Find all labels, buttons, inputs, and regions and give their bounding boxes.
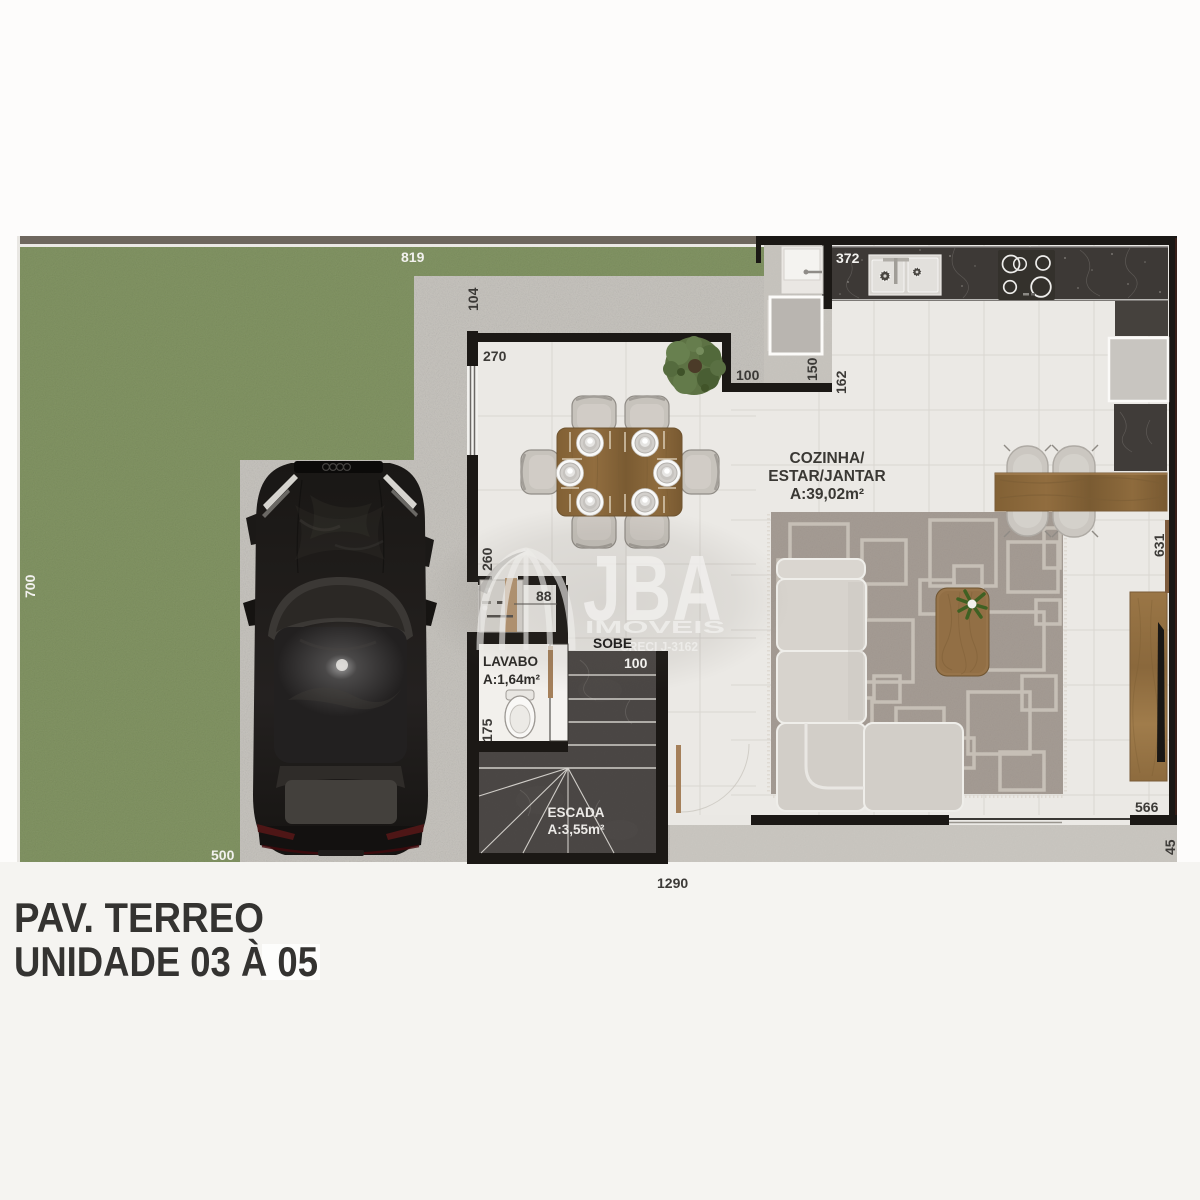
svg-text:ESTAR/JANTAR: ESTAR/JANTAR [768, 468, 885, 485]
svg-text:1290: 1290 [657, 875, 688, 891]
svg-text:700: 700 [22, 574, 38, 598]
svg-text:A:3,55m²: A:3,55m² [547, 822, 605, 837]
svg-text:566: 566 [1135, 799, 1159, 815]
svg-text:175: 175 [479, 718, 495, 742]
svg-text:150: 150 [804, 357, 820, 381]
svg-text:SOBE: SOBE [593, 636, 632, 651]
svg-text:100: 100 [624, 655, 648, 671]
svg-text:270: 270 [483, 348, 507, 364]
svg-text:104: 104 [465, 287, 481, 311]
svg-text:500: 500 [211, 847, 235, 863]
svg-text:162: 162 [833, 370, 849, 394]
svg-text:IMÓVEIS: IMÓVEIS [585, 616, 725, 637]
svg-text:631: 631 [1151, 533, 1167, 557]
svg-text:UNIDADE 03 À 05: UNIDADE 03 À 05 [14, 938, 318, 985]
svg-text:PAV. TERREO: PAV. TERREO [14, 894, 264, 941]
svg-text:100: 100 [736, 367, 760, 383]
svg-text:45: 45 [1162, 839, 1178, 855]
svg-text:LAVABO: LAVABO [483, 654, 538, 669]
svg-text:A:39,02m²: A:39,02m² [790, 486, 864, 503]
svg-text:88: 88 [536, 588, 552, 604]
svg-text:372: 372 [836, 250, 860, 266]
svg-text:COZINHA/: COZINHA/ [790, 450, 866, 467]
svg-text:260: 260 [479, 547, 495, 571]
svg-text:819: 819 [401, 249, 425, 265]
svg-text:A:1,64m²: A:1,64m² [483, 672, 541, 687]
svg-text:ESCADA: ESCADA [547, 805, 604, 820]
